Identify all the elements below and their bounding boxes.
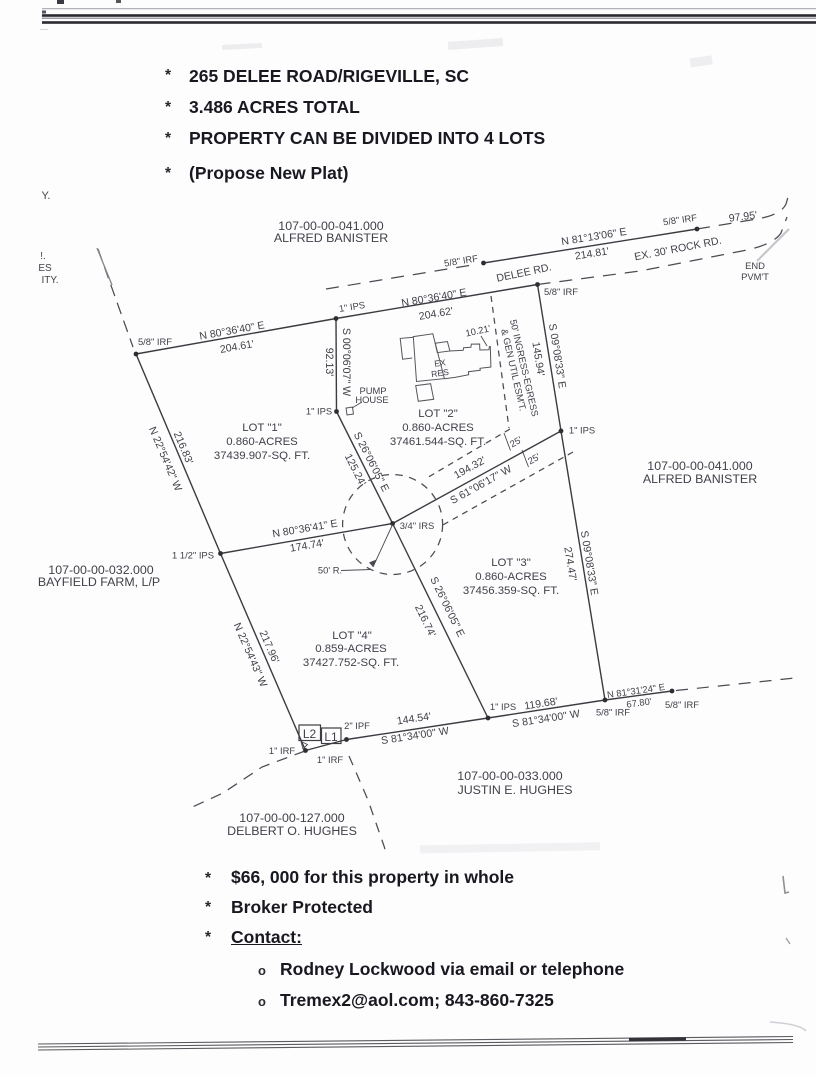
svg-text:174.74': 174.74' xyxy=(289,537,325,555)
svg-text:N 80°36'40" E: N 80°36'40" E xyxy=(198,319,265,342)
svg-text:LOT "4": LOT "4" xyxy=(332,630,372,642)
svg-text:S 09°08'33" E: S 09°08'33" E xyxy=(578,530,600,596)
svg-text:1" IRF: 1" IRF xyxy=(269,745,296,756)
svg-text:LOT "3": LOT "3" xyxy=(491,557,531,569)
svg-text:25': 25' xyxy=(508,434,524,450)
svg-text:0.860-ACRES: 0.860-ACRES xyxy=(226,436,298,448)
svg-text:DELBERT O. HUGHES: DELBERT O. HUGHES xyxy=(227,824,357,838)
svg-text:5/8" IRF: 5/8" IRF xyxy=(544,286,578,297)
svg-text:144.54': 144.54' xyxy=(396,710,432,727)
svg-text:216.83': 216.83' xyxy=(171,430,196,466)
svg-text:HOUSE: HOUSE xyxy=(355,394,388,405)
svg-text:37439.907-SQ. FT.: 37439.907-SQ. FT. xyxy=(214,450,310,462)
svg-text:1" IPS: 1" IPS xyxy=(569,425,595,436)
svg-text:107-00-00-041.000: 107-00-00-041.000 xyxy=(647,459,753,473)
svg-text:97.95': 97.95' xyxy=(728,209,758,224)
svg-text:0.860-ACRES: 0.860-ACRES xyxy=(402,422,474,434)
svg-text:5/8" IRF: 5/8" IRF xyxy=(138,336,172,347)
svg-text:25': 25' xyxy=(526,451,542,467)
svg-text:1" IPS: 1" IPS xyxy=(306,406,332,417)
svg-text:274.47': 274.47' xyxy=(561,546,578,582)
svg-text:ES: ES xyxy=(38,263,52,274)
svg-text:ALFRED BANISTER: ALFRED BANISTER xyxy=(274,231,388,245)
svg-text:1" IRF: 1" IRF xyxy=(317,754,344,765)
svg-text:EX. 30' ROCK RD.: EX. 30' ROCK RD. xyxy=(633,235,722,264)
svg-text:5/8" IRF: 5/8" IRF xyxy=(662,212,698,228)
svg-text:0.860-ACRES: 0.860-ACRES xyxy=(475,571,547,583)
svg-text:0.859-ACRES: 0.859-ACRES xyxy=(315,643,387,655)
svg-text:S 81°34'00" W: S 81°34'00" W xyxy=(511,708,580,730)
svg-text:10.21': 10.21' xyxy=(464,322,491,338)
svg-text:107-00-00-127.000: 107-00-00-127.000 xyxy=(239,811,345,825)
svg-text:1" IPS: 1" IPS xyxy=(490,701,516,712)
svg-text:L2: L2 xyxy=(303,727,317,741)
svg-text:PVM'T: PVM'T xyxy=(741,271,769,282)
svg-text:37456.359-SQ. FT.: 37456.359-SQ. FT. xyxy=(463,585,559,597)
svg-text:L1: L1 xyxy=(324,730,338,744)
svg-text:LOT "2": LOT "2" xyxy=(418,408,458,420)
svg-text:2" IPF: 2" IPF xyxy=(344,720,370,731)
svg-text:S 81°34'00" W: S 81°34'00" W xyxy=(380,725,449,747)
svg-text:50' R.: 50' R. xyxy=(318,565,342,576)
svg-text:37427.752-SQ. FT.: 37427.752-SQ. FT. xyxy=(303,657,399,669)
svg-text:ALFRED BANISTER: ALFRED BANISTER xyxy=(643,472,757,486)
svg-text:5/8" IRF: 5/8" IRF xyxy=(665,699,699,710)
svg-text:ITY.: ITY. xyxy=(41,275,58,286)
svg-text:92.13': 92.13' xyxy=(323,348,335,377)
svg-text:S 00°06'07" W: S 00°06'07" W xyxy=(340,328,352,396)
svg-text:BAYFIELD FARM, L/P: BAYFIELD FARM, L/P xyxy=(38,575,160,589)
svg-text:3/4" IRS: 3/4" IRS xyxy=(400,520,435,531)
svg-text:5/8" IRF: 5/8" IRF xyxy=(596,707,630,718)
svg-text:RES: RES xyxy=(431,367,450,379)
svg-text:END: END xyxy=(745,260,765,271)
svg-text:1" IPS: 1" IPS xyxy=(338,299,366,314)
svg-text:N 80°36'41" E: N 80°36'41" E xyxy=(271,518,338,541)
svg-text:LOT "1": LOT "1" xyxy=(242,422,282,434)
svg-text:Y.: Y. xyxy=(42,190,51,202)
svg-text:DELEE RD.: DELEE RD. xyxy=(495,261,552,284)
svg-text:204.62': 204.62' xyxy=(418,305,454,323)
svg-text:JUSTIN E. HUGHES: JUSTIN E. HUGHES xyxy=(458,783,573,797)
svg-text:!.: !. xyxy=(40,251,46,262)
svg-text:107-00-00-033.000: 107-00-00-033.000 xyxy=(457,769,563,783)
svg-text:119.68': 119.68' xyxy=(523,696,558,713)
svg-text:1 1/2" IPS: 1 1/2" IPS xyxy=(172,550,214,561)
svg-text:37461.544-SQ. FT.: 37461.544-SQ. FT. xyxy=(390,436,486,448)
svg-text:204.61': 204.61' xyxy=(219,338,255,356)
svg-text:N 80°36'40" E: N 80°36'40" E xyxy=(400,287,467,310)
